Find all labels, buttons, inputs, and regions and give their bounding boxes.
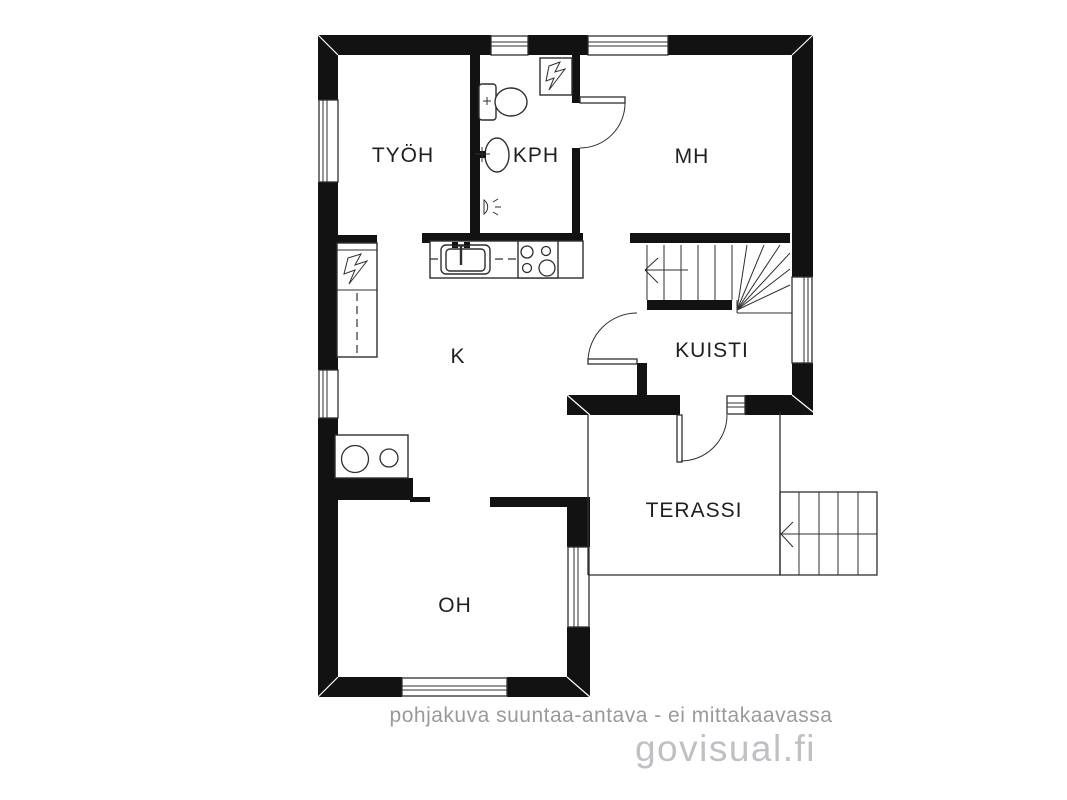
door-k-kuisti (588, 313, 637, 364)
window-mh-top (588, 36, 668, 55)
floor-plan-canvas: TYÖH KPH MH K KUISTI TERASSI OH pohjakuv… (0, 0, 1067, 800)
corner-bevels (318, 35, 813, 697)
room-label-kph: KPH (513, 144, 559, 167)
windows (319, 36, 812, 696)
sink-icon (441, 242, 490, 274)
stair-arrow-icon (645, 258, 688, 283)
brand-logo: govisual.fi (635, 728, 816, 769)
toilet-icon (479, 84, 527, 120)
disclaimer-text: pohjakuva suuntaa-antava - ei mittakaava… (390, 704, 833, 727)
room-label-tyoh: TYÖH (372, 144, 434, 167)
window-k-left (319, 370, 338, 418)
floor-plan-drawing: TYÖH KPH MH K KUISTI TERASSI OH pohjakuv… (0, 0, 1067, 800)
watermark: pohjakuva suuntaa-antava - ei mittakaava… (390, 704, 833, 769)
window-oh-bottom (402, 678, 507, 696)
room-label-k: K (450, 345, 465, 368)
electrical-cabinet (337, 243, 377, 357)
room-labels: TYÖH KPH MH K KUISTI TERASSI OH (372, 144, 749, 617)
door-kph-mh (580, 97, 625, 148)
room-label-kuisti: KUISTI (675, 339, 749, 362)
electrical-panel (540, 58, 572, 95)
wall-lamp-icon (484, 199, 501, 215)
door-kuisti-terassi (677, 415, 727, 462)
window-oh-right (568, 547, 589, 627)
sink-icon (475, 138, 509, 172)
terrace-outline (588, 412, 780, 575)
staircase-outdoor (780, 492, 877, 575)
window-tyoh-left (319, 100, 338, 182)
room-label-oh: OH (438, 594, 472, 617)
exterior-walls (318, 35, 813, 697)
stove-icon (518, 241, 558, 278)
kitchen-counter (430, 241, 583, 278)
window-kuisti-right (792, 277, 812, 363)
room-label-terassi: TERASSI (646, 499, 743, 522)
laundry-appliance (335, 435, 408, 478)
room-label-mh: MH (675, 145, 710, 168)
window-kph-top (491, 36, 528, 55)
window-kuisti-sidelight (727, 396, 745, 414)
